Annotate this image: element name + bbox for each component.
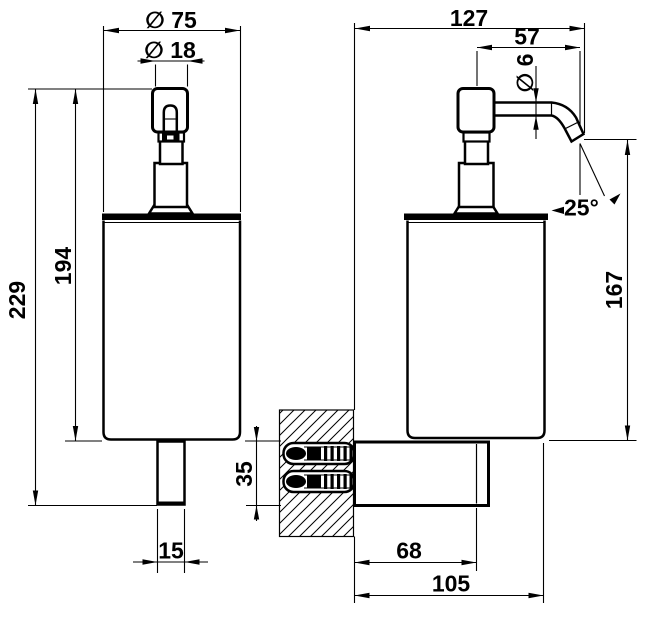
dim-label-167: 167 xyxy=(601,271,627,309)
dim-label-57: 57 xyxy=(514,24,540,50)
dim-label-194: 194 xyxy=(50,247,76,286)
pump-head-side xyxy=(458,89,494,133)
pump-collar xyxy=(464,133,490,142)
dim-194: 194 xyxy=(50,89,78,441)
front-body xyxy=(102,214,241,440)
dim-label-15: 15 xyxy=(158,538,184,564)
wall-bracket xyxy=(355,442,489,506)
dim-229: 229 xyxy=(4,89,38,506)
dim-label-68: 68 xyxy=(396,538,422,564)
side-body xyxy=(404,214,548,439)
spout xyxy=(492,103,584,142)
pump-stem xyxy=(465,141,488,164)
dim-label-dia6: ∅ 6 xyxy=(512,54,538,93)
pump-head-front xyxy=(153,89,188,133)
dim-label-229: 229 xyxy=(4,281,30,319)
soap-dispenser-drawing: ∅ 75 ∅ 18 194 229 xyxy=(0,0,646,626)
side-view xyxy=(280,89,584,537)
front-bottom-stem xyxy=(157,442,186,505)
dim-68: 68 xyxy=(355,508,477,571)
dim-angle25: 25° xyxy=(552,144,621,221)
pump-base xyxy=(459,163,494,207)
pump-base xyxy=(155,163,188,207)
front-view xyxy=(102,89,241,505)
dim-dia6: ∅ 6 xyxy=(512,54,539,139)
dim-15: 15 xyxy=(133,509,208,573)
dim-167: 167 xyxy=(549,140,637,441)
mounting-screw-top xyxy=(284,443,355,464)
dim-label-25deg: 25° xyxy=(564,195,599,221)
pump-stem xyxy=(160,141,183,164)
front-pump xyxy=(149,89,193,214)
dim-label-dia18: ∅ 18 xyxy=(144,37,196,63)
dim-label-dia75: ∅ 75 xyxy=(145,7,197,33)
dim-label-127: 127 xyxy=(450,5,488,31)
dim-dia18: ∅ 18 xyxy=(138,37,205,87)
dim-35: 35 xyxy=(231,426,281,521)
dim-label-35: 35 xyxy=(231,461,257,487)
technical-drawing-page: ∅ 75 ∅ 18 194 229 xyxy=(0,0,646,626)
mounting-screw-bottom xyxy=(284,471,355,492)
dim-label-105: 105 xyxy=(432,571,471,597)
